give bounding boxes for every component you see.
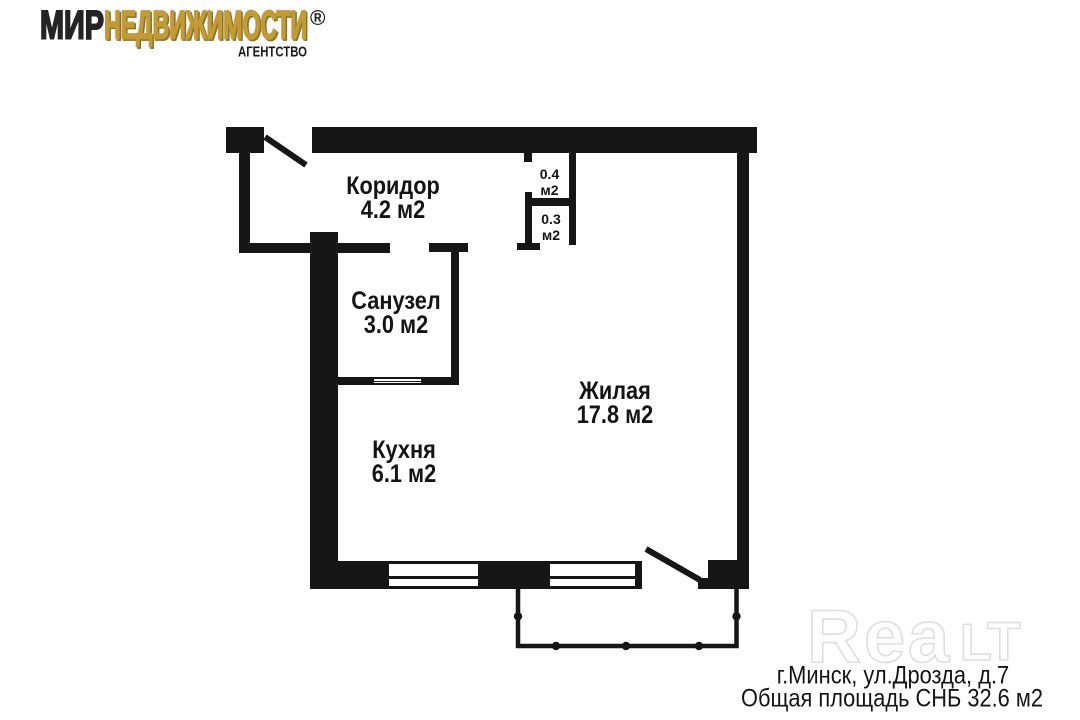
svg-text:®: ® bbox=[310, 7, 326, 30]
svg-text:МИР: МИР bbox=[40, 4, 104, 48]
svg-text:НЕДВИЖИМОСТИ: НЕДВИЖИМОСТИ bbox=[104, 4, 307, 48]
svg-text:АГЕНТСТВО: АГЕНТСТВО bbox=[238, 44, 307, 61]
